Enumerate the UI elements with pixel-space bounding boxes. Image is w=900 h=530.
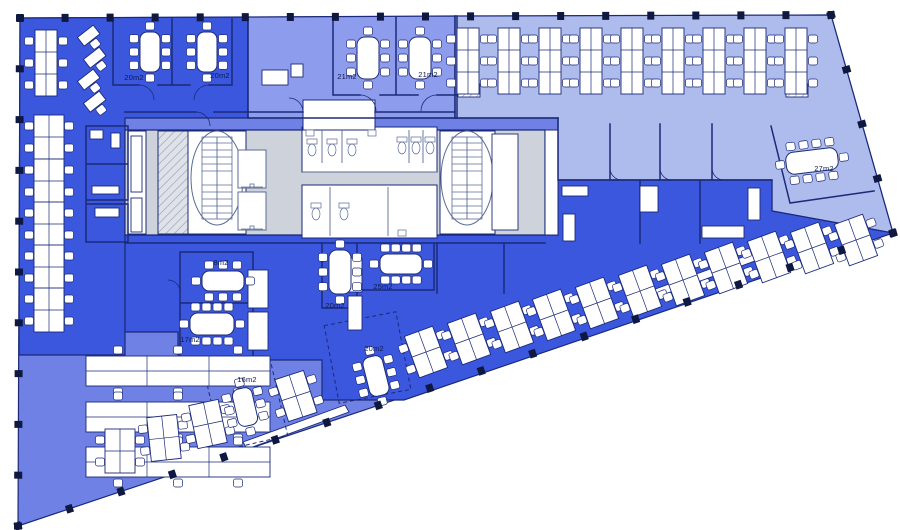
room-area-label: 25m2 bbox=[373, 282, 393, 291]
perimeter-column bbox=[782, 11, 789, 19]
room-area-label: 17m2 bbox=[180, 335, 200, 344]
perimeter-column bbox=[512, 12, 519, 20]
cabinet bbox=[640, 186, 658, 212]
toilet-fixture bbox=[311, 203, 321, 220]
desk-pod bbox=[775, 28, 818, 94]
desk-pod bbox=[734, 28, 777, 94]
toilet-fixture bbox=[397, 137, 407, 154]
desk-pod bbox=[693, 28, 736, 94]
desk-pod bbox=[25, 30, 68, 96]
floor-plan-canvas: 20m220m221m221m227m28m217m220m225m220m21… bbox=[0, 0, 900, 530]
core-room bbox=[545, 130, 558, 235]
perimeter-column bbox=[332, 13, 339, 21]
perimeter-column bbox=[15, 218, 23, 225]
elevator bbox=[238, 150, 266, 188]
cabinet bbox=[748, 188, 760, 220]
cabinet bbox=[262, 70, 288, 85]
cabinet bbox=[248, 270, 268, 308]
cabinet bbox=[111, 133, 120, 148]
toilet-fixture bbox=[307, 139, 317, 156]
perimeter-column bbox=[602, 12, 609, 20]
cabinet bbox=[291, 64, 303, 77]
toilet-fixture bbox=[327, 139, 337, 156]
perimeter-column bbox=[16, 14, 24, 21]
perimeter-column bbox=[62, 14, 69, 22]
cabinet bbox=[131, 136, 142, 192]
cabinet bbox=[348, 296, 362, 330]
cabinet bbox=[92, 186, 119, 194]
stairwell bbox=[441, 131, 493, 225]
perimeter-column bbox=[15, 370, 23, 377]
desk-pod bbox=[570, 28, 613, 94]
toilet-fixture bbox=[425, 137, 435, 154]
elevator bbox=[238, 192, 266, 230]
cabinet bbox=[248, 312, 268, 350]
room-area-label: 20m2 bbox=[210, 71, 230, 80]
perimeter-column bbox=[287, 13, 294, 21]
room-area-label: 21m2 bbox=[418, 70, 438, 79]
cabinet bbox=[95, 208, 119, 217]
perimeter-column bbox=[737, 11, 744, 19]
floor-plan-svg: 20m220m221m221m227m28m217m220m225m220m21… bbox=[0, 0, 900, 530]
toilet-fixture bbox=[339, 203, 349, 220]
cabinet bbox=[131, 198, 142, 232]
perimeter-column bbox=[692, 11, 699, 19]
shaft-void bbox=[158, 131, 188, 234]
perimeter-column bbox=[14, 472, 22, 479]
perimeter-column bbox=[647, 12, 654, 20]
cabinet bbox=[563, 214, 575, 241]
perimeter-column bbox=[16, 116, 24, 123]
cabinet bbox=[492, 134, 518, 230]
perimeter-column bbox=[14, 421, 22, 428]
room-area-label: 20m2 bbox=[124, 73, 144, 82]
room-area-label: 21m2 bbox=[337, 72, 357, 81]
perimeter-column bbox=[107, 14, 114, 22]
sink-fixture bbox=[306, 130, 314, 136]
perimeter-column bbox=[15, 167, 23, 174]
desk-pod bbox=[611, 28, 654, 94]
desk-pod bbox=[488, 28, 531, 94]
cabinet bbox=[562, 186, 588, 196]
desk-pod bbox=[447, 28, 490, 94]
toilet-fixture bbox=[411, 137, 421, 154]
perimeter-column bbox=[197, 13, 204, 21]
room-area-label: 27m2 bbox=[814, 164, 834, 173]
room-area-label: 20m2 bbox=[364, 344, 384, 353]
perimeter-column bbox=[422, 12, 429, 20]
desk-pod bbox=[652, 28, 695, 94]
perimeter-column bbox=[377, 13, 384, 21]
stairwell bbox=[191, 131, 243, 225]
core-room bbox=[302, 185, 437, 238]
perimeter-column bbox=[152, 13, 159, 21]
perimeter-column bbox=[15, 268, 23, 275]
perimeter-column bbox=[15, 319, 23, 326]
sink-fixture bbox=[398, 230, 406, 236]
room-area-label: 20m2 bbox=[325, 301, 345, 310]
perimeter-column bbox=[242, 13, 249, 21]
perimeter-column bbox=[14, 522, 22, 529]
perimeter-column bbox=[16, 65, 24, 72]
room-area-label: 16m2 bbox=[237, 375, 257, 384]
toilet-fixture bbox=[347, 139, 357, 156]
desk-pod bbox=[529, 28, 572, 94]
perimeter-column bbox=[467, 12, 474, 20]
perimeter-column bbox=[557, 12, 564, 20]
cabinet bbox=[90, 130, 103, 139]
core-room bbox=[303, 100, 375, 130]
sink-fixture bbox=[368, 130, 376, 136]
cabinet bbox=[702, 226, 744, 238]
room-area-label: 8m2 bbox=[213, 258, 228, 267]
